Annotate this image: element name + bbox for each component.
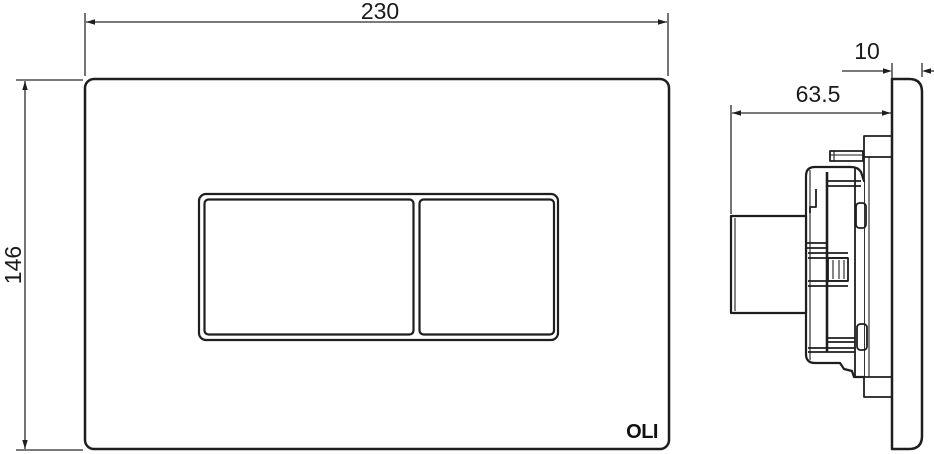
- front-view: OLI: [85, 79, 669, 449]
- brand-logo: OLI: [626, 421, 658, 443]
- arrowhead-right: [882, 110, 891, 115]
- mechanism-body: [806, 151, 867, 377]
- bracket-outline: [864, 136, 892, 397]
- arrowhead-left: [86, 19, 95, 24]
- dimension-label-thickness: 10: [854, 38, 880, 64]
- arrowhead-right: [658, 19, 667, 24]
- arrowhead-inward-left: [922, 68, 931, 73]
- dimension-label-width: 230: [361, 0, 399, 24]
- arrowhead-bottom: [22, 440, 27, 449]
- mounting-bracket: [864, 136, 892, 397]
- dimension-front-width: 230: [85, 0, 668, 76]
- arrowhead-inward-right: [883, 68, 892, 73]
- drawing-canvas: OLI 230 146: [0, 0, 934, 454]
- flush-button-small: [420, 200, 555, 335]
- arrowhead-left: [732, 110, 741, 115]
- flush-button-large: [205, 200, 414, 335]
- arrowhead-top: [22, 81, 27, 90]
- flush-plate-technical-drawing: OLI 230 146: [0, 0, 934, 454]
- dimension-label-depth: 63.5: [796, 81, 841, 107]
- piston-outline: [731, 216, 806, 313]
- top-clip-tab: [830, 151, 863, 161]
- dimension-label-height: 146: [0, 246, 26, 284]
- dimension-plate-thickness: 10: [842, 38, 934, 78]
- dimension-front-height: 146: [0, 80, 83, 450]
- plate-side-profile: [892, 79, 922, 449]
- side-view: [731, 79, 922, 449]
- push-rod-housing: [731, 216, 806, 313]
